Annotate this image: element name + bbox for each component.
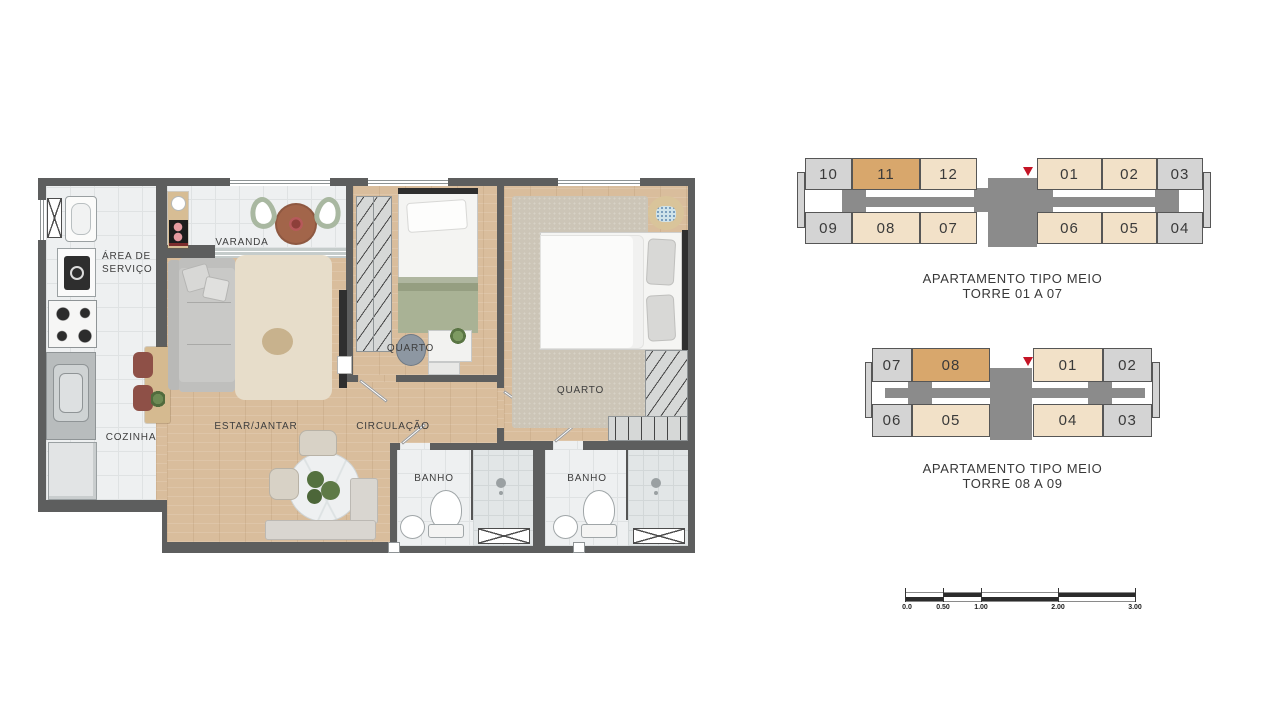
tv-console — [337, 356, 352, 374]
living-rug — [235, 255, 332, 400]
key-plan-torre-08-09: 07 08 01 02 06 05 04 03 — [865, 345, 1160, 440]
bath2-sink — [553, 515, 578, 539]
bedroom1-window — [368, 178, 448, 186]
room-label-quarto-1: QUARTO — [368, 342, 453, 355]
key-plan2-right-tab — [1152, 362, 1160, 418]
dining-bench-right — [350, 478, 378, 524]
bath1-shower-partition — [471, 450, 473, 520]
stool-1 — [133, 352, 153, 378]
scale-label-0: 0.0 — [902, 604, 912, 611]
unit-06: 06 — [1037, 212, 1102, 244]
sofa-pillow-2 — [202, 276, 230, 303]
t2-unit-02-number: 02 — [1118, 357, 1137, 374]
unit-05-number: 05 — [1120, 220, 1139, 237]
bath1-door-opening — [400, 443, 430, 450]
key-plan1-right-tab — [1203, 172, 1211, 228]
key-plan2-corridor-stub-left — [908, 381, 932, 405]
dining-plate-2 — [321, 481, 340, 500]
wall-bedroom1-left — [346, 178, 353, 382]
dining-bench-bottom — [265, 520, 376, 540]
unit-07-number: 07 — [939, 220, 958, 237]
washing-machine-door — [64, 256, 90, 290]
washing-machine-drum — [70, 266, 84, 280]
unit-10-number: 10 — [819, 166, 838, 183]
key-plan1-elevator-core — [988, 178, 1037, 247]
room-label-banho-1: BANHO — [396, 472, 472, 485]
sofa-cushion-line-1 — [187, 302, 231, 303]
bedroom1-wardrobe-divider — [373, 197, 374, 351]
bedroom1-nightstand — [428, 362, 460, 375]
bath2-shower-partition — [626, 450, 628, 520]
unit-03-number: 03 — [1171, 166, 1190, 183]
bedroom2-bed — [540, 232, 682, 350]
key-plan2-title-line2: TORRE 08 A 09 — [810, 476, 1215, 491]
bedroom2-pillow-2 — [646, 294, 676, 341]
t2-unit-08-number: 08 — [942, 357, 961, 374]
bedroom1-blanket — [398, 277, 478, 333]
key-plan2-left-tab — [865, 362, 872, 418]
scale-tick-200 — [1058, 588, 1059, 602]
key-plan2-title-line1: APARTAMENTO TIPO MEIO — [810, 461, 1215, 476]
bedroom2-pillow-1 — [646, 238, 676, 285]
key-plan2-title: APARTAMENTO TIPO MEIO TORRE 08 A 09 — [810, 461, 1215, 491]
unit-04-number: 04 — [1171, 220, 1190, 237]
t2-unit-06-number: 06 — [883, 412, 902, 429]
balcony-window — [230, 178, 330, 186]
key-plan1-corridor-stub-right — [1155, 189, 1179, 213]
scale-label-050: 0.50 — [936, 604, 950, 611]
scale-tick-050 — [943, 588, 944, 602]
scale-tick-100 — [981, 588, 982, 602]
dining-plate-3 — [307, 489, 322, 504]
unit-02: 02 — [1102, 158, 1157, 190]
room-label-area-servico-line2: SERVIÇO — [102, 263, 164, 276]
dining-chair-left — [269, 468, 299, 500]
bath1-window — [478, 528, 530, 544]
unit-08: 08 — [852, 212, 920, 244]
bedroom2-plant — [648, 196, 684, 230]
unit-08-number: 08 — [877, 220, 896, 237]
key-plan2-corridor-stub-right — [1088, 381, 1112, 405]
room-label-estar-jantar: ESTAR/JANTAR — [196, 420, 316, 433]
bath2-door-opening — [553, 441, 583, 450]
stove — [48, 300, 97, 348]
scale-label-300: 3.00 — [1128, 604, 1142, 611]
scale-bar: 0.0 0.50 1.00 2.00 3.00 — [905, 588, 1136, 616]
room-label-banho-2: BANHO — [549, 472, 625, 485]
fridge — [48, 442, 97, 500]
key-plan1-title-line1: APARTAMENTO TIPO MEIO — [810, 271, 1215, 286]
scale-bar-body — [905, 592, 1136, 602]
unit-11-number: 11 — [877, 166, 895, 183]
unit-10: 10 — [805, 158, 852, 190]
sofa-cushion-line-2 — [187, 344, 231, 345]
kitchen-sink — [53, 364, 89, 422]
circulation-floor — [346, 382, 497, 443]
selected-position-marker-icon-2 — [1023, 357, 1033, 366]
room-label-area-servico: ÁREA DE SERVIÇO — [102, 250, 164, 276]
key-plan-torre-01-07: 10 11 12 01 02 03 09 08 07 06 05 04 — [800, 155, 1225, 247]
unit-09: 09 — [805, 212, 852, 244]
selected-position-marker-icon — [1023, 167, 1033, 176]
t2-unit-07-number: 07 — [883, 357, 902, 374]
room-label-cozinha: COZINHA — [91, 431, 171, 444]
bedroom1-headboard — [398, 188, 478, 194]
bedroom1-wardrobe — [356, 196, 392, 352]
dining-chair-top — [299, 430, 337, 456]
scale-seg-bot-3 — [982, 597, 1059, 601]
key-plan1-title: APARTAMENTO TIPO MEIO TORRE 01 A 07 — [810, 271, 1215, 301]
unit-05: 05 — [1102, 212, 1157, 244]
bath1-toilet-tank — [428, 524, 464, 538]
t2-unit-02: 02 — [1103, 348, 1152, 382]
unit-01-number: 01 — [1060, 166, 1079, 183]
pouf — [262, 328, 293, 355]
kitchen-counter — [46, 352, 96, 440]
bedroom2-wardrobe-vertical — [645, 350, 688, 418]
room-label-quarto-2: QUARTO — [538, 384, 623, 397]
unit-04: 04 — [1157, 212, 1203, 244]
laundry-sink — [65, 196, 97, 242]
kitchen-sink-basin — [59, 373, 83, 413]
washing-machine — [57, 248, 96, 297]
unit-11: 11 — [852, 158, 920, 190]
room-label-varanda: VARANDA — [202, 236, 282, 249]
unit-01: 01 — [1037, 158, 1102, 190]
unit-02-number: 02 — [1120, 166, 1139, 183]
bedroom2-plant-pot — [656, 206, 676, 222]
bath2-shower-head — [651, 478, 661, 488]
bbq-grill — [169, 220, 188, 246]
t2-unit-04: 04 — [1033, 404, 1103, 437]
t2-unit-05: 05 — [912, 404, 990, 437]
floor-plan-marketing-image: ÁREA DE SERVIÇO VARANDA COZINHA ESTAR/JA… — [0, 0, 1280, 720]
bedroom2-duvet — [540, 235, 644, 349]
t2-unit-03-number: 03 — [1118, 412, 1137, 429]
stool-2 — [133, 385, 153, 411]
t2-unit-06: 06 — [872, 404, 912, 437]
bath2-toilet-tank — [581, 524, 617, 538]
service-door-panel — [47, 198, 62, 238]
wall-bedroom2-bottom — [497, 441, 695, 450]
unit-06-number: 06 — [1060, 220, 1079, 237]
bedroom1-bed — [398, 188, 478, 332]
t2-unit-04-number: 04 — [1059, 412, 1078, 429]
key-plan2-elevator-core — [990, 368, 1032, 440]
scale-seg-bot-4 — [1059, 597, 1135, 601]
t2-unit-03: 03 — [1103, 404, 1152, 437]
scale-label-200: 2.00 — [1051, 604, 1065, 611]
bath1-shower-head — [496, 478, 506, 488]
bedroom2-door-opening — [497, 388, 504, 428]
bedroom2-window — [558, 178, 640, 186]
unit-03: 03 — [1157, 158, 1203, 190]
service-window — [38, 200, 46, 240]
scale-tick-300 — [1135, 588, 1136, 602]
scale-tick-0 — [905, 588, 906, 602]
balcony-table-centerpiece — [289, 217, 303, 231]
bedroom2-wardrobe-horizontal — [608, 416, 688, 441]
unit-12: 12 — [920, 158, 977, 190]
scale-seg-bot-2 — [944, 597, 982, 601]
t2-unit-01-number: 01 — [1059, 357, 1078, 374]
t2-unit-05-number: 05 — [942, 412, 961, 429]
unit-07: 07 — [920, 212, 977, 244]
key-plan1-corridor-stub-core-right — [1037, 188, 1053, 212]
unit-12-number: 12 — [939, 166, 958, 183]
apartment-floor-plan: ÁREA DE SERVIÇO VARANDA COZINHA ESTAR/JA… — [38, 178, 695, 553]
bedroom1-pillow — [406, 199, 468, 233]
bath1-sink — [400, 515, 425, 539]
t2-unit-08: 08 — [912, 348, 990, 382]
wall-bath-divider — [533, 443, 545, 553]
key-plan1-corridor-stub-left — [842, 189, 866, 213]
room-label-circulacao: CIRCULAÇÃO — [343, 420, 443, 433]
peninsula-plant — [151, 390, 165, 408]
t2-unit-07: 07 — [872, 348, 912, 382]
bath2-window — [633, 528, 685, 544]
t2-unit-01: 01 — [1033, 348, 1103, 382]
laundry-sink-basin — [71, 203, 91, 235]
scale-label-100: 1.00 — [974, 604, 988, 611]
key-plan1-title-line2: TORRE 01 A 07 — [810, 286, 1215, 301]
room-label-area-servico-line1: ÁREA DE — [102, 250, 164, 263]
key-plan1-left-tab — [797, 172, 805, 228]
bbq-sink — [171, 196, 186, 211]
bedroom2-headboard — [682, 230, 688, 352]
threshold-mark-1 — [388, 542, 400, 553]
threshold-mark-2 — [573, 542, 585, 553]
wall-bath1-left — [390, 443, 397, 553]
unit-09-number: 09 — [819, 220, 838, 237]
scale-seg-bot-1 — [906, 597, 944, 601]
